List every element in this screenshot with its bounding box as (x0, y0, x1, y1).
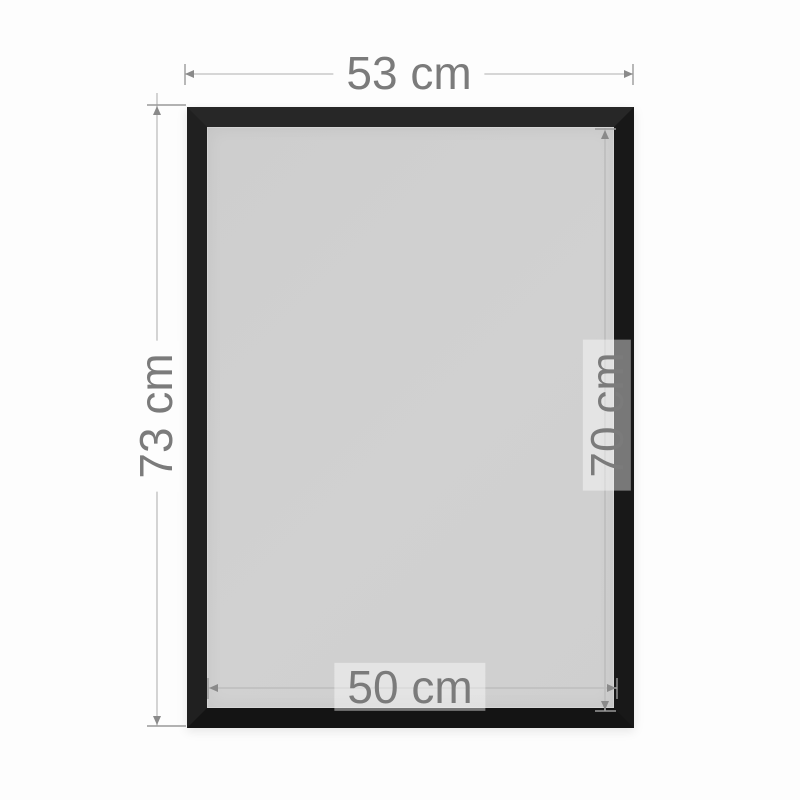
dimension-label-right: 70 cm (583, 339, 631, 490)
dimension-arrow-down-icon (153, 716, 161, 725)
dimension-label-top: 53 cm (333, 49, 484, 97)
dimension-arrow-left-icon (185, 70, 194, 78)
dimension-label-left: 73 cm (132, 340, 180, 491)
product-dimension-diagram: 53 cm 73 cm 70 cm 50 cm (0, 0, 800, 800)
dimension-arrow-up-icon (601, 130, 609, 139)
dimension-arrow-left-icon (209, 684, 218, 692)
dimension-label-bottom: 50 cm (334, 663, 485, 711)
dimension-arrow-right-icon (624, 70, 633, 78)
dimension-arrow-right-icon (607, 684, 616, 692)
dimension-arrow-down-icon (601, 701, 609, 710)
dimension-arrow-up-icon (153, 106, 161, 115)
